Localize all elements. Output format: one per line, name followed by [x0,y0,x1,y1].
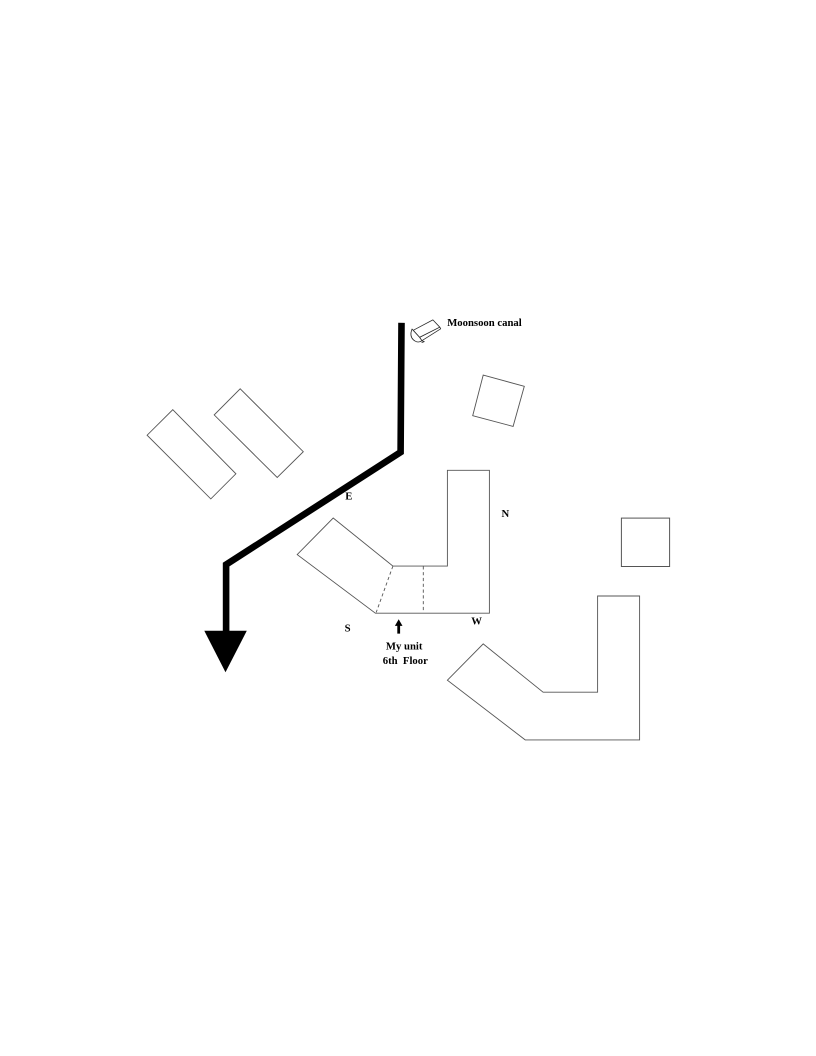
svg-text:N: N [502,508,510,520]
svg-text:6th Floor: 6th Floor [383,655,428,667]
svg-text:My unit: My unit [386,641,423,653]
svg-text:E: E [345,491,352,503]
svg-text:Moonsoon canal: Moonsoon canal [447,317,522,329]
svg-text:W: W [471,616,482,628]
svg-text:S: S [345,623,351,635]
